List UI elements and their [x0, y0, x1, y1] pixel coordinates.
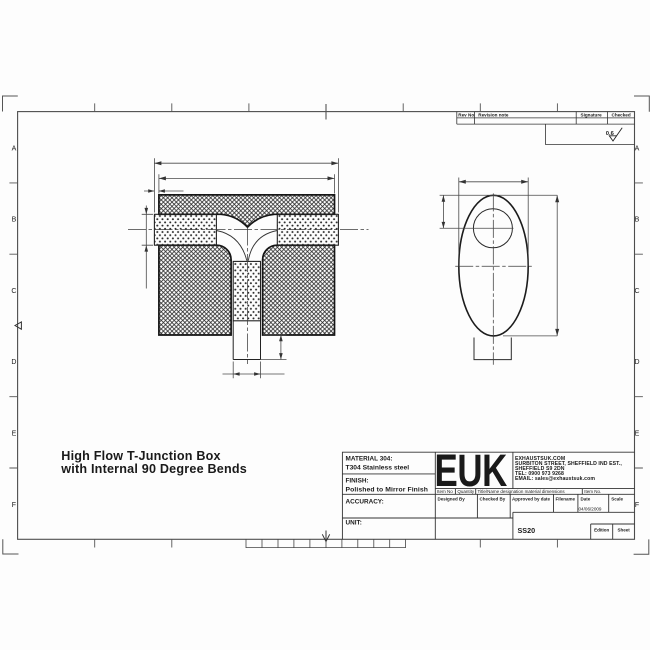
svg-text:B: B — [635, 217, 640, 224]
svg-text:Designed By: Designed By — [438, 497, 466, 502]
svg-text:EMAIL: sales@exhaustsuk.com: EMAIL: sales@exhaustsuk.com — [515, 476, 595, 482]
svg-text:Checked By: Checked By — [480, 497, 506, 502]
svg-text:E: E — [12, 431, 17, 438]
svg-text:A: A — [635, 145, 640, 152]
svg-text:C: C — [11, 288, 16, 295]
svg-text:E: E — [635, 431, 640, 438]
svg-text:F: F — [12, 502, 16, 509]
svg-text:Filename: Filename — [556, 497, 576, 502]
svg-text:C: C — [634, 288, 639, 295]
svg-text:Item No: Item No — [437, 489, 453, 494]
svg-text:Rev No: Rev No — [458, 113, 474, 118]
svg-text:UNIT:: UNIT: — [346, 520, 362, 527]
svg-text:A: A — [12, 145, 17, 152]
svg-text:Signature: Signature — [581, 113, 603, 118]
svg-text:Revision note: Revision note — [478, 113, 509, 118]
svg-text:Quantity: Quantity — [457, 489, 475, 494]
svg-text:SS20: SS20 — [518, 526, 536, 535]
svg-text:04/06/2009: 04/06/2009 — [579, 506, 602, 511]
svg-text:Scale: Scale — [611, 497, 623, 502]
svg-text:Checked: Checked — [612, 113, 631, 118]
svg-text:with Internal 90 Degree Bends: with Internal 90 Degree Bends — [60, 462, 247, 476]
svg-text:Sheet: Sheet — [617, 527, 630, 532]
svg-text:MATERIAL 304:: MATERIAL 304: — [346, 455, 393, 462]
svg-text:Date: Date — [581, 497, 591, 502]
svg-text:T304 Stainless steel: T304 Stainless steel — [346, 465, 410, 472]
svg-text:D: D — [634, 359, 639, 366]
svg-text:FINISH:: FINISH: — [346, 478, 369, 485]
svg-text:Item No.: Item No. — [584, 489, 601, 494]
svg-text:Title/Name designation materia: Title/Name designation material dimensio… — [478, 489, 566, 494]
svg-text:B: B — [12, 217, 17, 224]
svg-text:High Flow T-Junction Box: High Flow T-Junction Box — [61, 449, 220, 463]
svg-text:F: F — [635, 502, 639, 509]
svg-text:Edition: Edition — [594, 527, 609, 532]
svg-text:ACCURACY:: ACCURACY: — [346, 499, 384, 506]
svg-text:D: D — [11, 359, 16, 366]
svg-text:Approved by date: Approved by date — [512, 497, 551, 502]
svg-text:Polished to Mirror Finish: Polished to Mirror Finish — [346, 487, 429, 494]
